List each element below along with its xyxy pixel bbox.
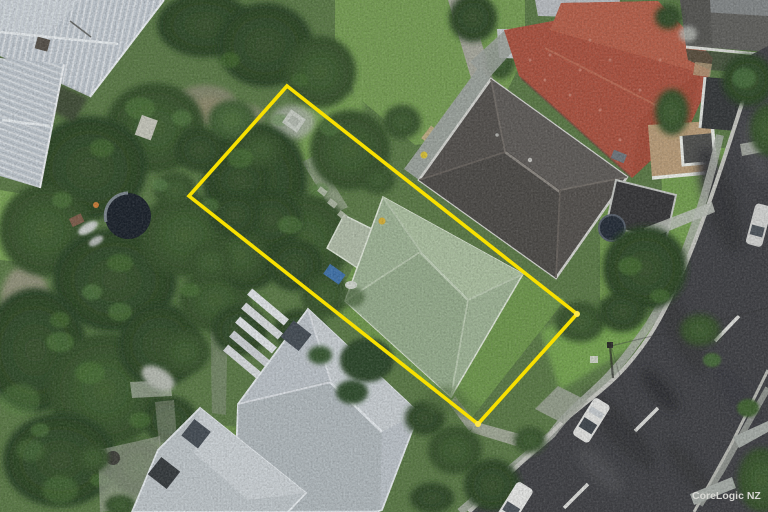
svg-text:CoreLogic NZ: CoreLogic NZ: [692, 490, 761, 502]
